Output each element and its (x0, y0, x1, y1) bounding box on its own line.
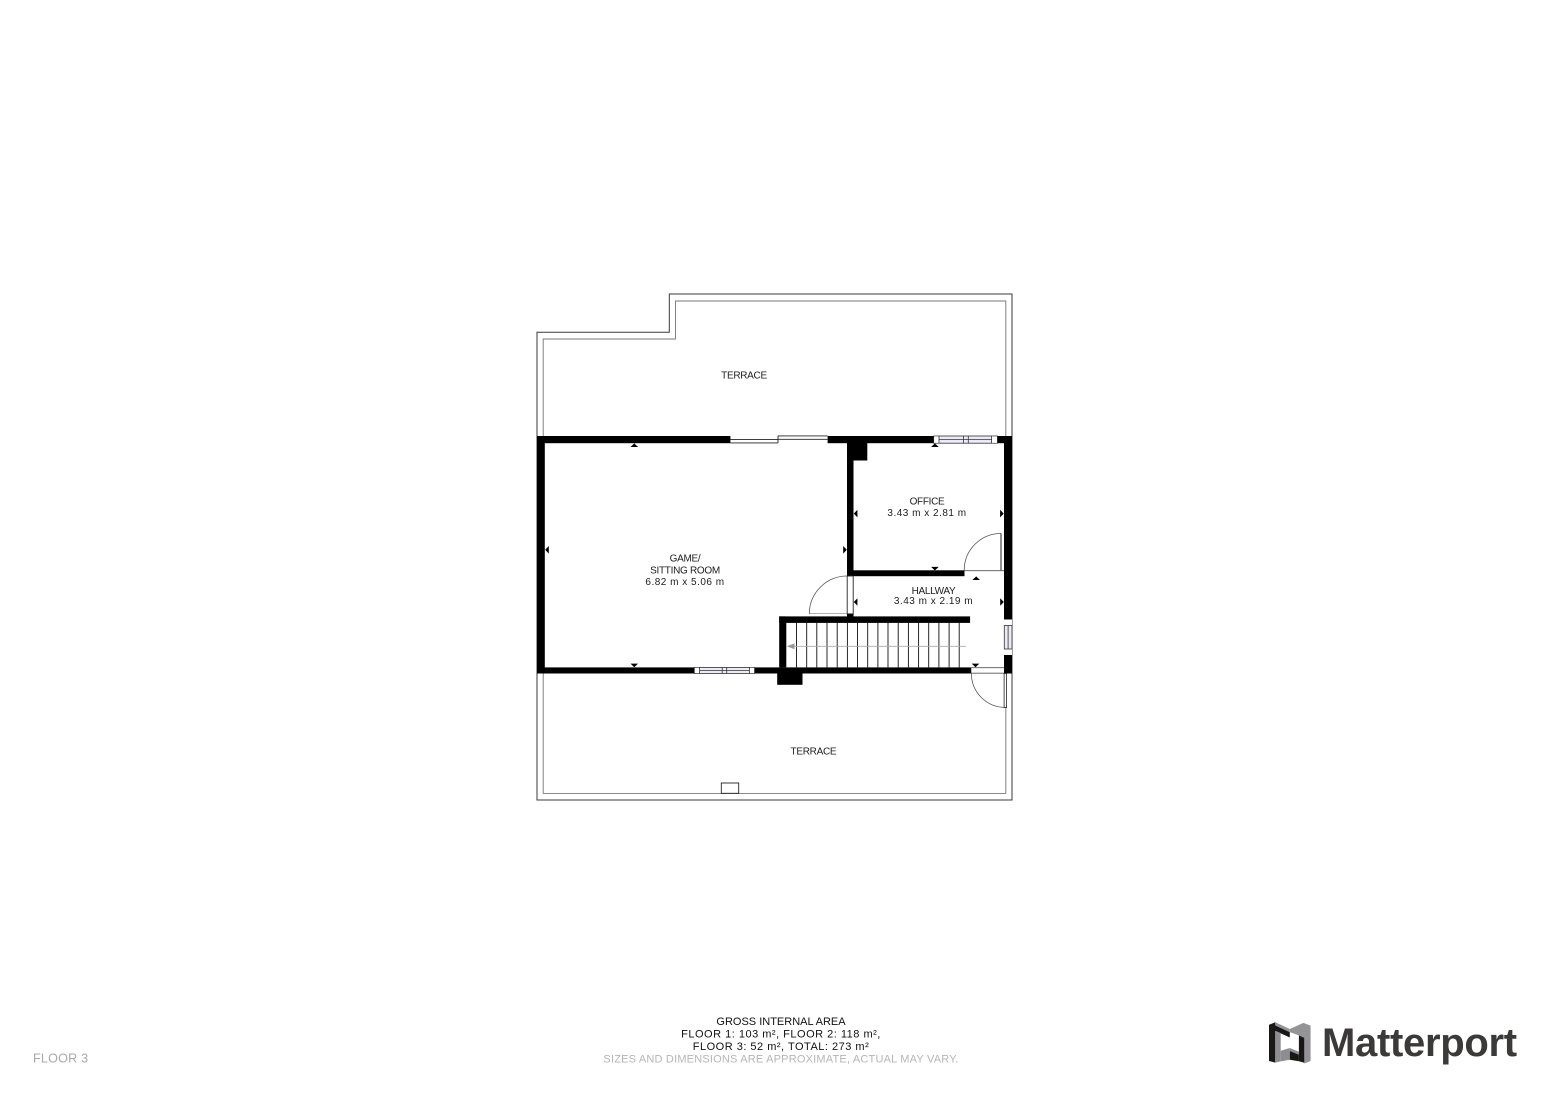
svg-text:3.43 m x 2.19 m: 3.43 m x 2.19 m (894, 596, 973, 607)
svg-text:GROSS INTERNAL AREA: GROSS INTERNAL AREA (716, 1016, 846, 1028)
svg-text:GAME/: GAME/ (670, 554, 701, 565)
svg-text:TERRACE: TERRACE (791, 747, 837, 758)
svg-text:6.82 m x 5.06 m: 6.82 m x 5.06 m (645, 577, 724, 588)
svg-text:FLOOR 3: FLOOR 3 (33, 1052, 88, 1066)
svg-text:SITTING ROOM: SITTING ROOM (650, 566, 720, 577)
svg-text:OFFICE: OFFICE (910, 497, 945, 508)
svg-text:FLOOR 3: 52 m², TOTAL: 273 m²: FLOOR 3: 52 m², TOTAL: 273 m² (693, 1041, 870, 1053)
svg-text:FLOOR 1: 103 m², FLOOR 2: 118: FLOOR 1: 103 m², FLOOR 2: 118 m², (681, 1029, 881, 1041)
svg-text:3.43 m x 2.81 m: 3.43 m x 2.81 m (887, 508, 966, 519)
svg-text:TERRACE: TERRACE (721, 371, 767, 382)
svg-text:Matterport: Matterport (1322, 1021, 1517, 1065)
svg-text:SIZES AND DIMENSIONS ARE APPRO: SIZES AND DIMENSIONS ARE APPROXIMATE, AC… (603, 1053, 958, 1065)
